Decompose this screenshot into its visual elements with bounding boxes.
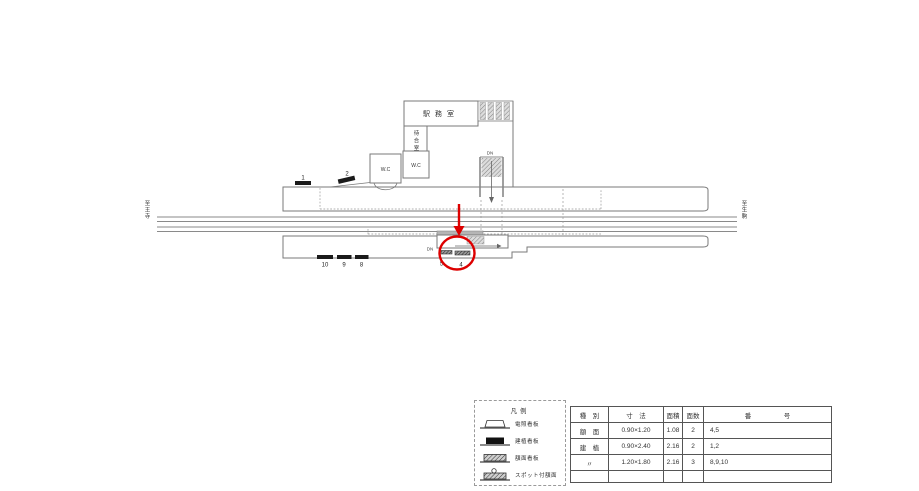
cell-numbers: 1,2	[704, 439, 832, 455]
cell-size: 0.90×1.20	[609, 423, 664, 439]
entrance-stair-bar	[480, 103, 486, 120]
cell-faces: 3	[683, 455, 704, 471]
legend-label: 建植看板	[515, 437, 539, 445]
table-row: 額 面 0.90×1.20 1.08 2 4,5	[571, 423, 832, 439]
legend-item: 電照看板	[475, 415, 565, 432]
legend-label: 電照看板	[515, 420, 539, 428]
table-row: 〃 1.20×1.80 2.16 3 8,9,10	[571, 455, 832, 471]
legend-label: 額面看板	[515, 454, 539, 462]
legend-item: スポット付額面	[475, 466, 565, 483]
wc-right-label: W.C	[411, 163, 421, 169]
cell-size: 1.20×1.80	[609, 455, 664, 471]
dn-label-lower: DN	[427, 247, 434, 252]
illuminated-sign-icon	[479, 417, 511, 431]
dn-label-upper: DN	[487, 151, 494, 156]
header-numbers: 番 号	[704, 407, 832, 423]
header-area: 面積	[664, 407, 683, 423]
cell-size: 0.90×2.40	[609, 439, 664, 455]
sign-label-1: 1	[301, 176, 305, 182]
face-sign-icon	[479, 451, 511, 465]
cell-type: 建 植	[571, 439, 609, 455]
legend-item: 額面看板	[475, 449, 565, 466]
spotlit-face-sign-icon	[479, 468, 511, 482]
page: 駅務室 W.C W.C DN	[0, 0, 919, 491]
sign-board-10	[317, 255, 333, 259]
legend-title: 凡例	[475, 405, 565, 415]
cell-type: 〃	[571, 455, 609, 471]
sign-spec-table: 種 別 寸 法 面積 面数 番 号 額 面 0.90×1.20 1.08 2 4…	[570, 406, 832, 483]
cell-area: 1.08	[664, 423, 683, 439]
cell-numbers: 8,9,10	[704, 455, 832, 471]
legend-label: スポット付額面	[515, 471, 557, 479]
platform-edge-diagonal	[330, 183, 370, 188]
table-row: 建 植 0.90×2.40 2.16 2 1,2	[571, 439, 832, 455]
cell-area: 2.16	[664, 455, 683, 471]
header-size: 寸 法	[609, 407, 664, 423]
sign-label-9: 9	[342, 263, 346, 269]
cell-faces: 2	[683, 423, 704, 439]
sign-board-5	[441, 251, 452, 255]
entrance-stair-bar	[496, 103, 502, 120]
cell-faces: 2	[683, 439, 704, 455]
legend-box: 凡例 電照看板 建植看板	[474, 400, 566, 486]
entrance-stairs	[478, 101, 513, 121]
entrance-stair-bar	[504, 103, 510, 120]
sign-board-4	[455, 251, 470, 255]
upper-platform	[283, 187, 708, 211]
direction-label-left: 至王寺	[143, 200, 149, 220]
station-office-label: 駅務室	[423, 109, 459, 118]
sign-label-10: 10	[322, 263, 329, 269]
track-lines	[157, 217, 737, 232]
sign-board-9	[337, 255, 352, 259]
standing-sign-icon	[479, 434, 511, 448]
waiting-room-label: 待合室	[412, 130, 418, 153]
table-row-empty	[571, 471, 832, 483]
sign-label-2: 2	[345, 172, 349, 178]
legend-item: 建植看板	[475, 432, 565, 449]
sign-board-8	[355, 255, 369, 259]
direction-label-right: 至生駒	[740, 200, 746, 220]
header-faces: 面数	[683, 407, 704, 423]
cell-numbers: 4,5	[704, 423, 832, 439]
entrance-stair-bar	[488, 103, 494, 120]
cell-type: 額 面	[571, 423, 609, 439]
header-type: 種 別	[571, 407, 609, 423]
sign-board-1	[295, 181, 311, 185]
wc-left-label: W.C	[381, 167, 391, 173]
sign-label-8: 8	[360, 263, 364, 269]
cell-area: 2.16	[664, 439, 683, 455]
table-header-row: 種 別 寸 法 面積 面数 番 号	[571, 407, 832, 423]
